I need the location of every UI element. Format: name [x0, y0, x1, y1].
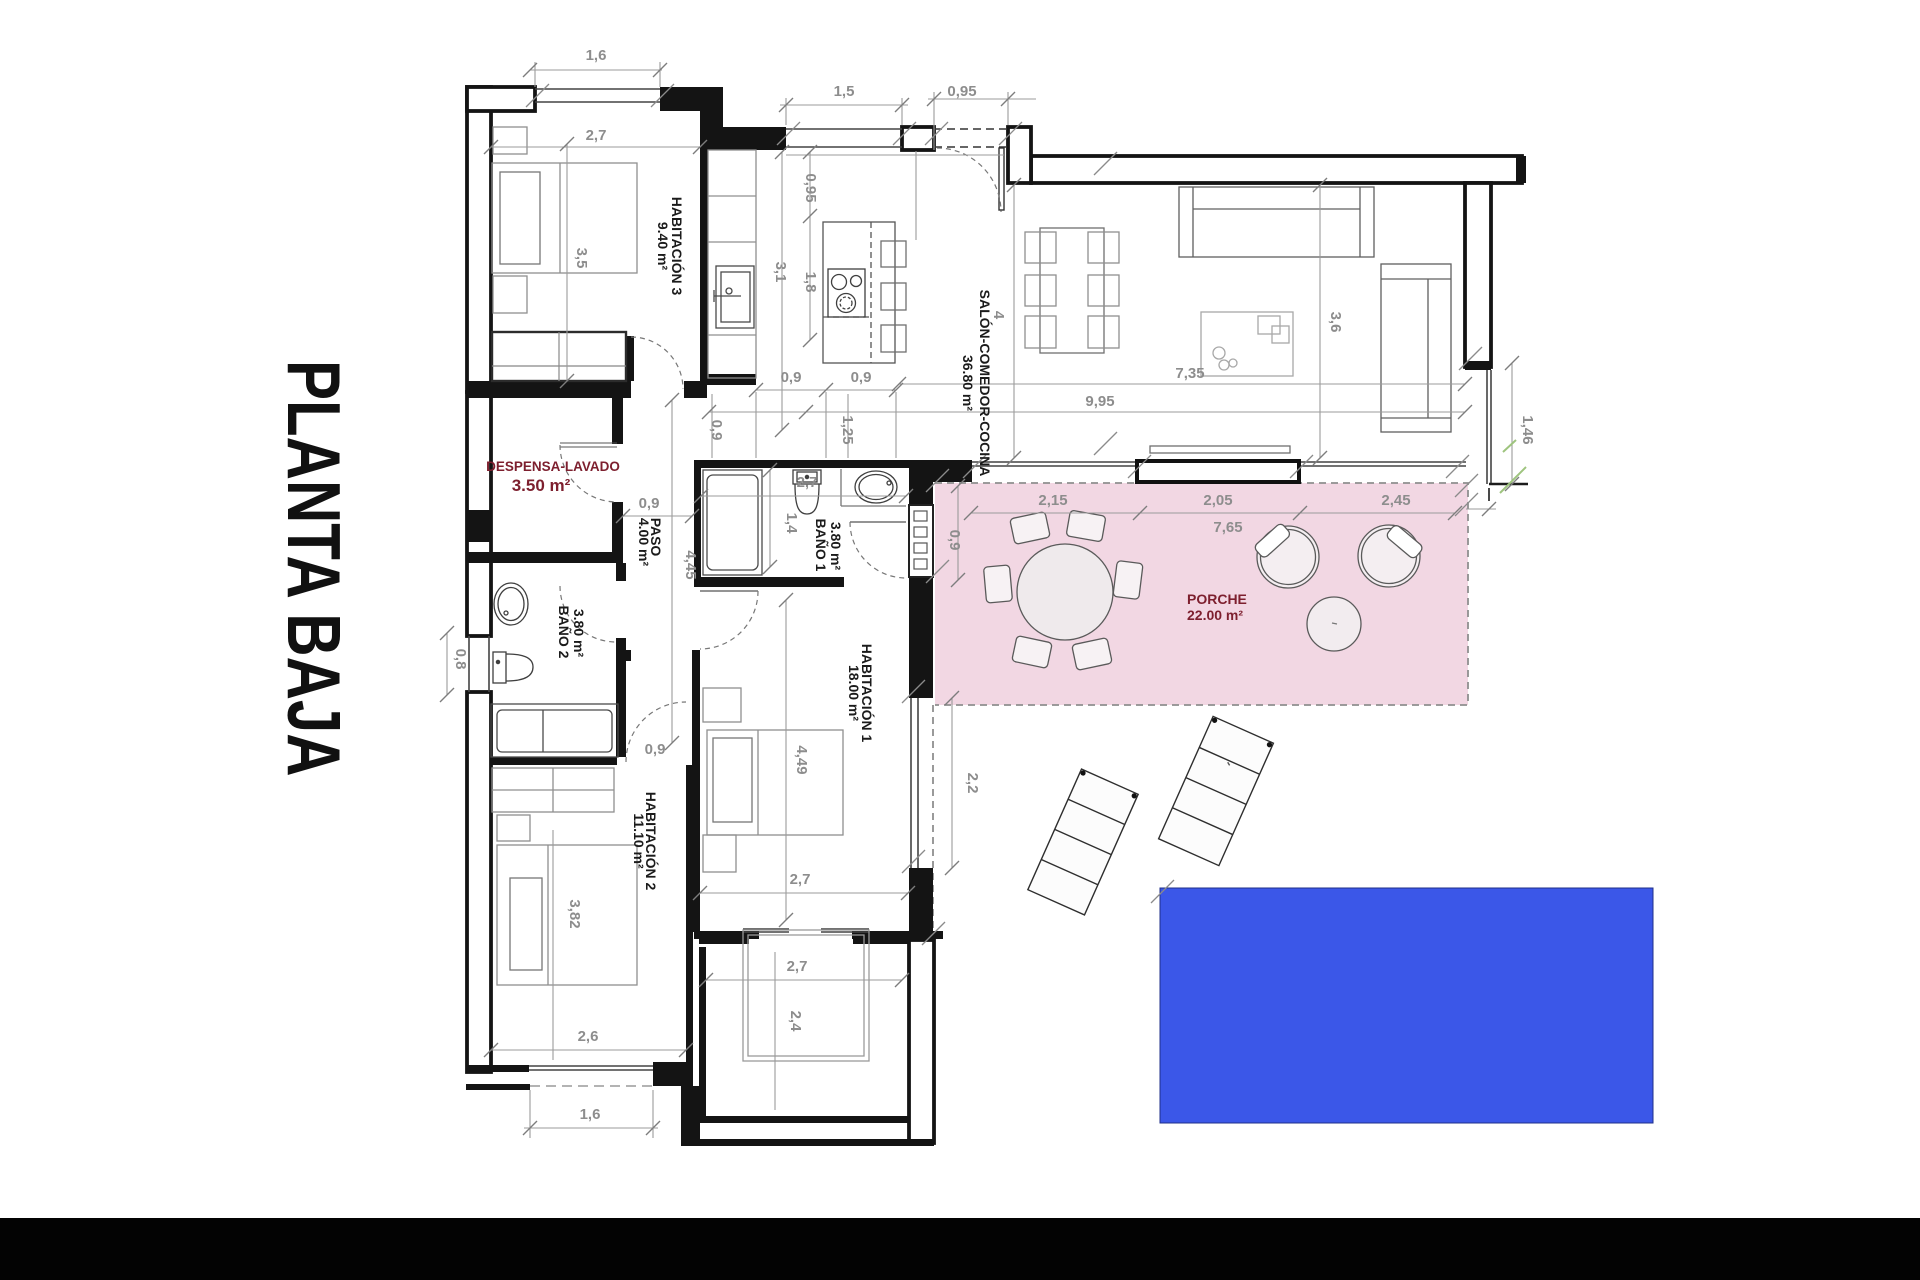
svg-text:4,49: 4,49 [793, 745, 810, 774]
svg-text:PORCHE: PORCHE [1187, 591, 1247, 607]
svg-text:2,2: 2,2 [964, 773, 981, 794]
svg-text:3,5: 3,5 [573, 248, 590, 269]
svg-text:0,8: 0,8 [452, 649, 469, 670]
svg-text:1,8: 1,8 [802, 272, 819, 293]
svg-text:3.50 m²: 3.50 m² [512, 476, 571, 495]
svg-text:0,95: 0,95 [802, 173, 819, 202]
svg-text:1,6: 1,6 [580, 1106, 601, 1123]
svg-text:36.80 m²: 36.80 m² [960, 355, 976, 411]
svg-text:18.00 m²: 18.00 m² [846, 665, 862, 721]
svg-text:4.00 m²: 4.00 m² [636, 518, 652, 567]
svg-text:0,95: 0,95 [947, 83, 976, 100]
svg-text:0,9: 0,9 [708, 420, 725, 441]
svg-text:0,9: 0,9 [639, 495, 660, 512]
svg-text:2,7: 2,7 [787, 958, 808, 975]
svg-text:1,6: 1,6 [586, 47, 607, 64]
svg-text:7,65: 7,65 [1213, 519, 1242, 536]
svg-text:2,15: 2,15 [1038, 492, 1067, 509]
svg-text:3.80 m²: 3.80 m² [828, 522, 844, 571]
svg-text:2,7: 2,7 [797, 474, 818, 491]
svg-text:3,1: 3,1 [772, 262, 789, 283]
svg-text:BAÑO 1: BAÑO 1 [813, 519, 830, 572]
svg-text:0,9: 0,9 [851, 369, 872, 386]
svg-text:3,82: 3,82 [566, 899, 583, 928]
svg-text:2,45: 2,45 [1381, 492, 1410, 509]
svg-text:2,6: 2,6 [578, 1028, 599, 1045]
svg-text:1,4: 1,4 [783, 513, 800, 535]
svg-text:7,35: 7,35 [1175, 365, 1204, 382]
svg-text:9,95: 9,95 [1085, 393, 1114, 410]
svg-text:BAÑO 2: BAÑO 2 [556, 606, 573, 659]
svg-text:DESPENSA-LAVADO: DESPENSA-LAVADO [486, 459, 620, 474]
svg-text:1,25: 1,25 [839, 415, 856, 444]
svg-text:3.80 m²: 3.80 m² [571, 609, 587, 658]
svg-text:4: 4 [990, 311, 1007, 320]
svg-text:2,7: 2,7 [586, 127, 607, 144]
svg-text:2,4: 2,4 [787, 1011, 804, 1033]
svg-text:PLANTA BAJA: PLANTA BAJA [271, 360, 354, 777]
svg-text:0,9: 0,9 [781, 369, 802, 386]
svg-text:0,9: 0,9 [645, 741, 666, 758]
svg-text:9.40 m²: 9.40 m² [655, 222, 671, 271]
svg-text:0,9: 0,9 [946, 530, 963, 551]
svg-text:4,45: 4,45 [682, 550, 699, 579]
svg-text:2,7: 2,7 [790, 871, 811, 888]
svg-text:3,6: 3,6 [1327, 312, 1344, 333]
svg-text:11.10 m²: 11.10 m² [631, 813, 647, 869]
svg-text:1,5: 1,5 [834, 83, 855, 100]
svg-text:2,05: 2,05 [1203, 492, 1232, 509]
svg-text:1,46: 1,46 [1519, 415, 1536, 444]
svg-text:22.00 m²: 22.00 m² [1187, 607, 1243, 623]
